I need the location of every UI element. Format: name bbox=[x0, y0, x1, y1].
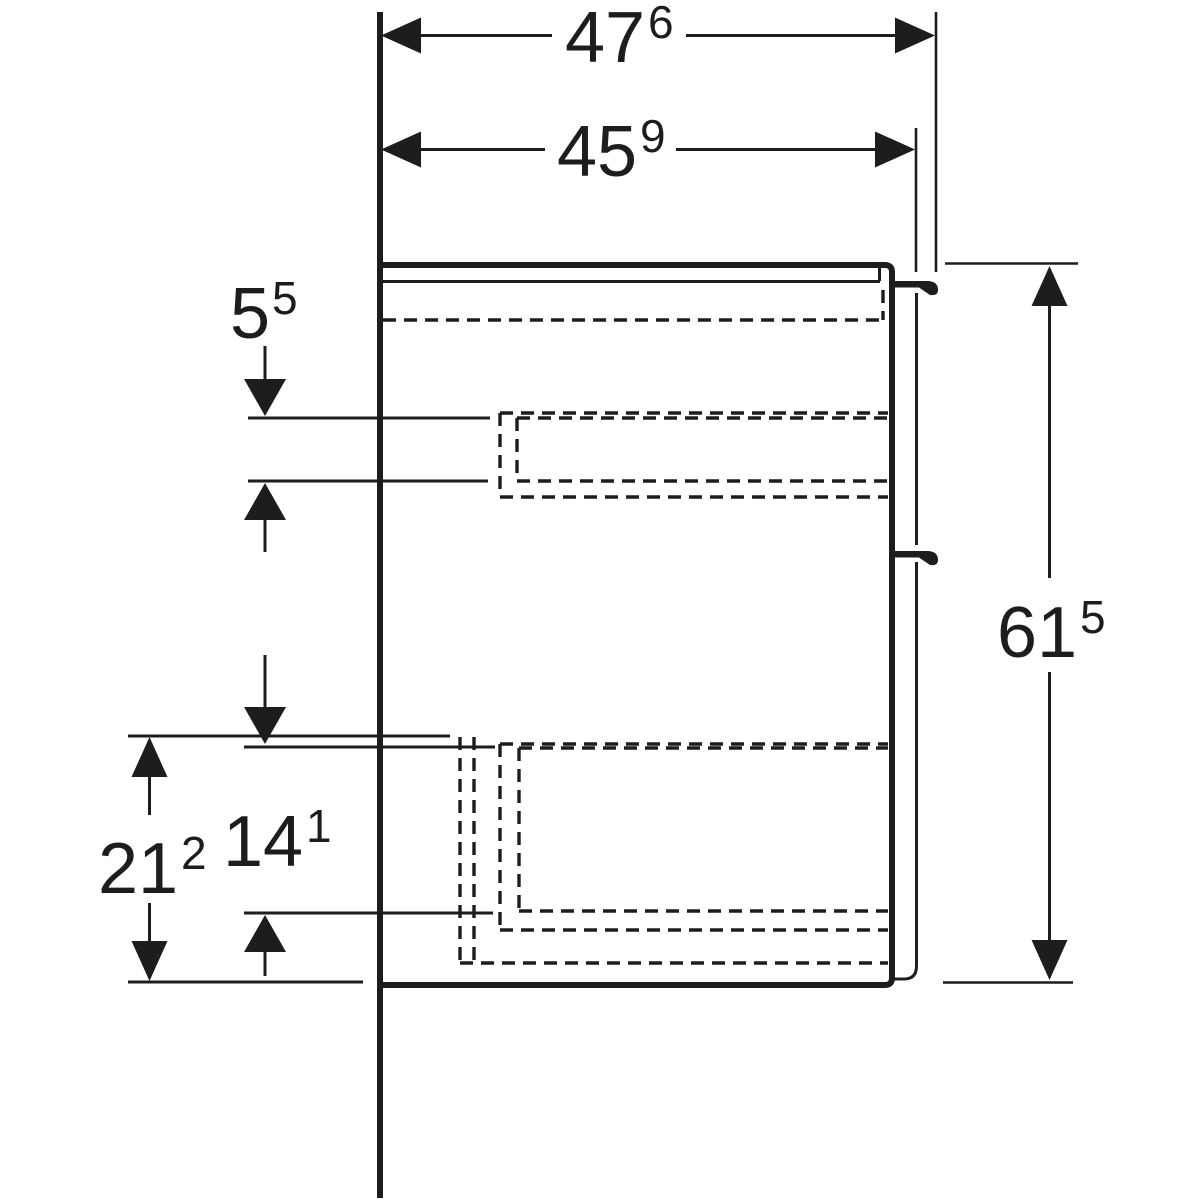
dim-value: 5 bbox=[230, 274, 270, 354]
arrow-up-icon bbox=[132, 737, 168, 777]
arrow-down-icon bbox=[244, 379, 286, 416]
lower-drawer-handle-icon bbox=[889, 551, 938, 565]
lower-front-panel-line bbox=[893, 562, 917, 979]
arrow-up-icon bbox=[244, 483, 286, 520]
dim-superscript: 5 bbox=[1080, 591, 1106, 643]
arrow-left-icon bbox=[381, 18, 421, 54]
dimension-lower-compartment-height: 21 2 bbox=[98, 737, 207, 981]
dim-value: 47 bbox=[565, 0, 645, 78]
arrow-down-icon bbox=[244, 707, 286, 744]
washbasin-recess-hidden-edge bbox=[383, 290, 883, 320]
dim-value: 14 bbox=[223, 802, 303, 882]
arrow-left-icon bbox=[381, 132, 421, 168]
arrow-down-icon bbox=[132, 941, 168, 981]
dimension-cabinet-height: 61 5 bbox=[943, 264, 1106, 983]
upper-drawer-hidden-outline bbox=[500, 413, 888, 497]
dimension-lower-drawer-inner-height: 14 1 bbox=[223, 655, 332, 976]
technical-drawing-canvas: 47 6 45 9 61 5 5 5 14 1 bbox=[0, 0, 1200, 1200]
arrow-right-icon bbox=[875, 132, 915, 168]
upper-drawer-handle-icon bbox=[889, 281, 938, 295]
dim-superscript: 1 bbox=[306, 800, 332, 852]
vanity-side-view-drawing: 47 6 45 9 61 5 5 5 14 1 bbox=[0, 0, 1200, 1200]
dim-superscript: 2 bbox=[181, 827, 207, 879]
arrow-up-icon bbox=[1032, 266, 1068, 306]
dim-superscript: 6 bbox=[648, 0, 674, 48]
cabinet-body-outline bbox=[377, 265, 892, 985]
dimension-upper-drawer-inner-height: 5 5 bbox=[230, 272, 298, 552]
dim-value: 21 bbox=[98, 829, 178, 909]
arrow-right-icon bbox=[895, 18, 935, 54]
dim-value: 61 bbox=[997, 593, 1077, 673]
dim-superscript: 5 bbox=[272, 272, 298, 324]
cabinet-outline-path bbox=[377, 265, 892, 985]
dim-superscript: 9 bbox=[640, 110, 666, 162]
drawer-front-panel bbox=[889, 281, 938, 979]
lower-drawer-hidden-outline bbox=[460, 737, 888, 963]
dimension-door-depth: 45 9 bbox=[381, 110, 916, 272]
reference-lines bbox=[128, 418, 495, 982]
dim-value: 45 bbox=[557, 112, 637, 192]
arrow-down-icon bbox=[1032, 940, 1068, 980]
arrow-up-icon bbox=[244, 915, 286, 952]
